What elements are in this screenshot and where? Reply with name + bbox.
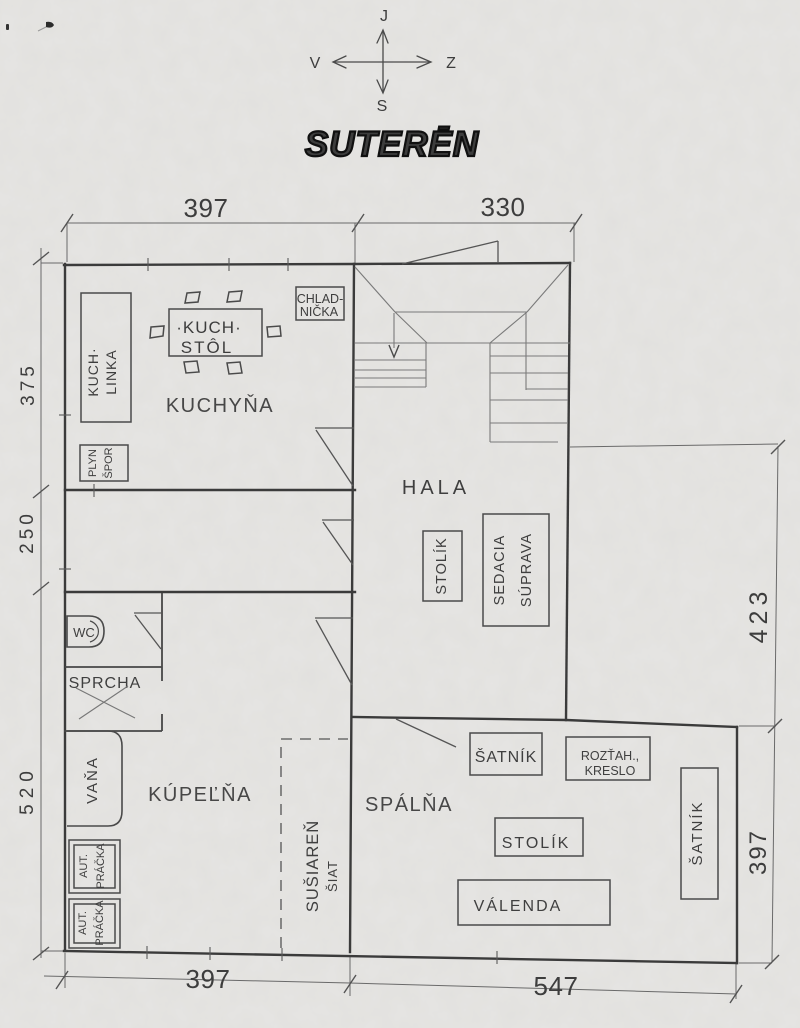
svg-text:ŠIAT: ŠIAT <box>325 860 340 892</box>
svg-text:ŠPOR: ŠPOR <box>102 447 115 478</box>
svg-text:SUTERĒN: SUTERĒN <box>305 125 479 164</box>
svg-text:330: 330 <box>481 192 526 222</box>
svg-text:LINKA: LINKA <box>103 349 119 394</box>
svg-text:423: 423 <box>745 587 773 644</box>
svg-text:AUT.: AUT. <box>77 911 89 935</box>
svg-text:Z: Z <box>446 55 456 72</box>
svg-text:S: S <box>377 98 388 115</box>
svg-text:397: 397 <box>184 193 229 223</box>
svg-text:PLYN: PLYN <box>87 449 99 477</box>
svg-text:J: J <box>380 8 388 25</box>
svg-text:PRÁČKA: PRÁČKA <box>94 843 107 889</box>
svg-text:VÁLENDA: VÁLENDA <box>474 896 563 915</box>
svg-text:547: 547 <box>534 971 579 1001</box>
svg-text:CHLAD-: CHLAD- <box>297 292 344 306</box>
svg-text:·KUCH·: ·KUCH· <box>176 318 242 337</box>
svg-text:HALA: HALA <box>402 477 470 499</box>
svg-text:KÚPEĽŇA: KÚPEĽŇA <box>148 783 252 806</box>
svg-text:STÔL: STÔL <box>181 338 233 357</box>
svg-text:375: 375 <box>18 362 39 406</box>
svg-text:SPÁLŇA: SPÁLŇA <box>365 793 453 816</box>
svg-text:250: 250 <box>17 510 38 554</box>
svg-text:KUCHYŇA: KUCHYŇA <box>166 394 274 417</box>
svg-text:VAŇA: VAŇA <box>84 756 101 804</box>
svg-text:SEDACIA: SEDACIA <box>492 535 508 606</box>
svg-text:WC: WC <box>73 625 95 640</box>
svg-text:KRESLO: KRESLO <box>585 764 636 778</box>
svg-text:SUŠIAREŇ: SUŠIAREŇ <box>303 820 322 912</box>
svg-text:PRÁČKA: PRÁČKA <box>93 900 106 946</box>
svg-text:AUT.: AUT. <box>78 854 90 878</box>
svg-text:397: 397 <box>186 964 231 994</box>
svg-text:V: V <box>310 55 321 72</box>
svg-text:520: 520 <box>17 765 38 815</box>
svg-text:ŠATNÍK: ŠATNÍK <box>475 747 538 766</box>
svg-text:STOLÍK: STOLÍK <box>502 833 571 852</box>
svg-text:ROZŤAH.,: ROZŤAH., <box>581 748 639 763</box>
svg-text:ŠATNÍK: ŠATNÍK <box>689 800 706 865</box>
svg-text:SÚPRAVA: SÚPRAVA <box>518 533 535 607</box>
svg-text:397: 397 <box>745 829 772 875</box>
svg-text:STOLÍK: STOLÍK <box>433 537 450 594</box>
svg-text:KUCH·: KUCH· <box>85 347 101 396</box>
svg-text:NIČKA: NIČKA <box>300 304 339 319</box>
